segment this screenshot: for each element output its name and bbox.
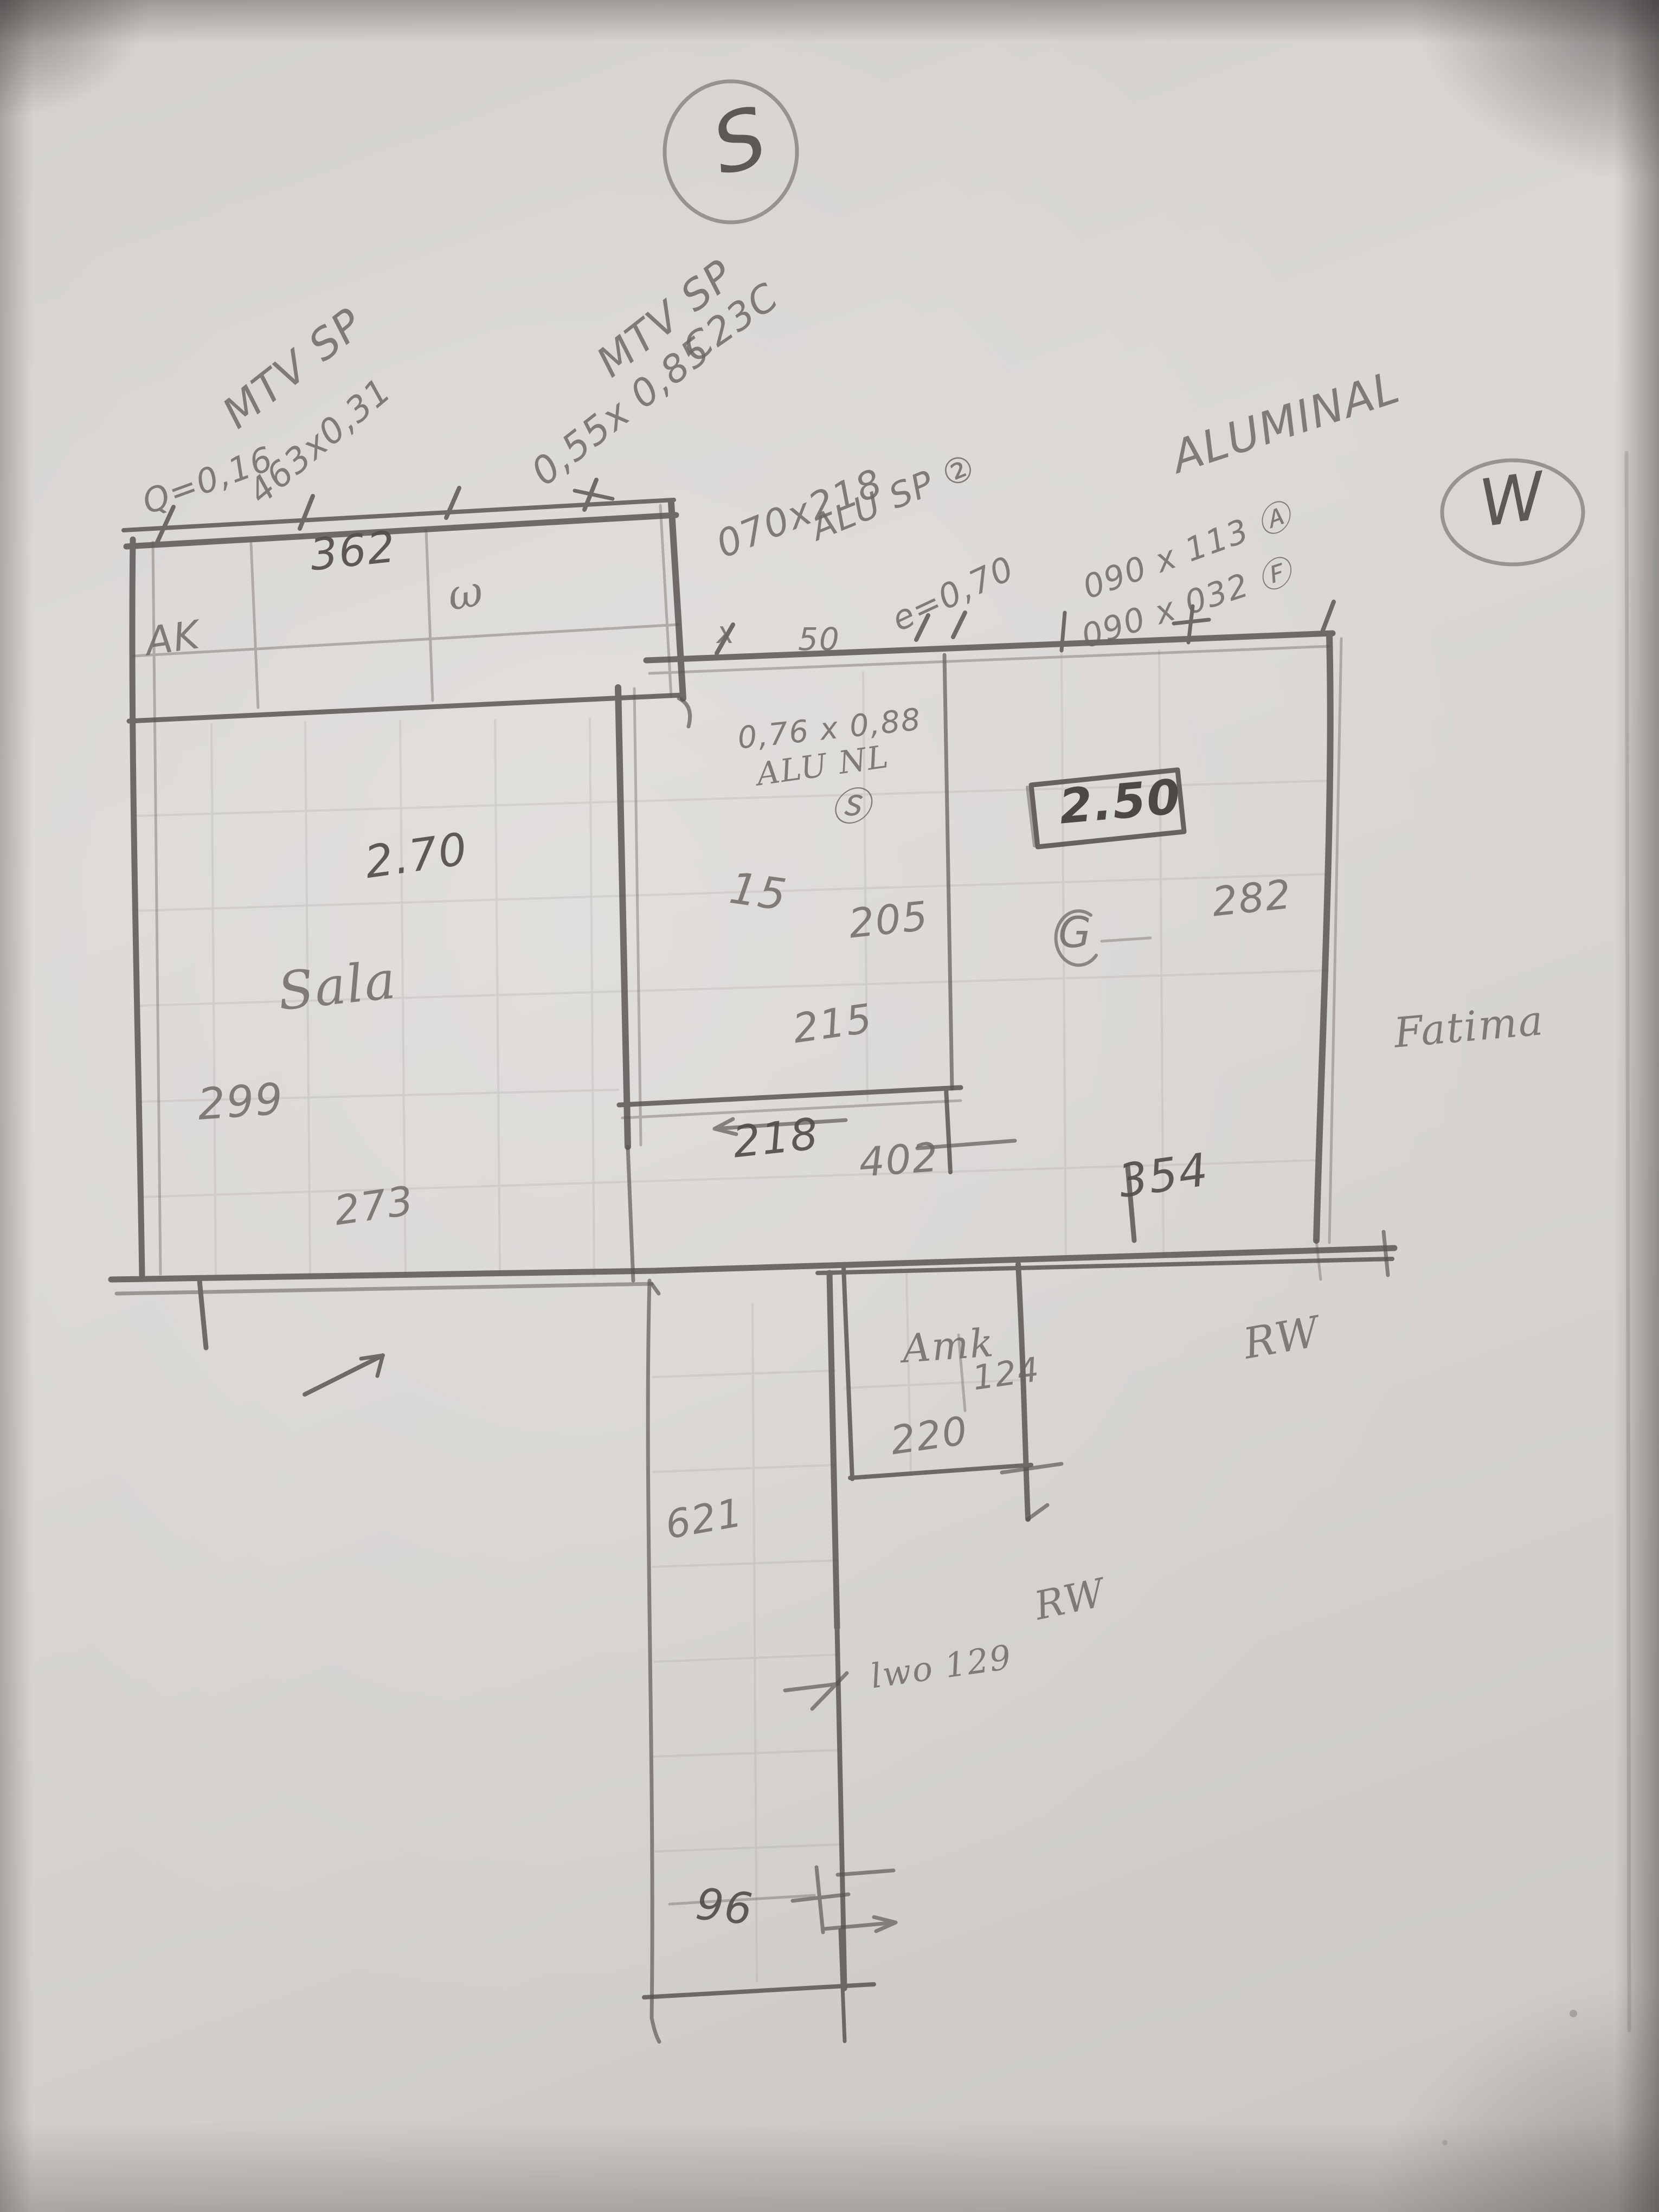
dimension-402: 402 (858, 1137, 940, 1183)
dimension-124: 124 (970, 1353, 1042, 1396)
dimension-96: 96 (694, 1882, 756, 1932)
heavy-walls (111, 480, 1394, 2041)
dimension-362: 362 (308, 525, 398, 577)
wall-mark-50: 50 (798, 623, 840, 655)
photo-corner-top-left (0, 0, 152, 119)
photo-corner-top-right (1410, 0, 1659, 184)
room-label-ak: AK (143, 615, 203, 661)
photo-corner-bottom-right (1377, 1984, 1659, 2212)
dimension-273: 273 (332, 1181, 416, 1232)
dimension-282: 282 (1210, 874, 1294, 923)
photo-edge-left (0, 0, 33, 2212)
dimension-215: 215 (790, 999, 875, 1050)
dimension-354: 354 (1116, 1147, 1211, 1204)
dimension-220: 220 (888, 1411, 970, 1460)
boxed-value-2-50: 2.50 (1057, 773, 1183, 831)
construction-grid (136, 651, 1328, 1982)
paper-edge-and-specks (1442, 453, 1629, 2145)
circled-g-letter: G (1058, 912, 1092, 954)
annotation-circled-s: Ⓢ (831, 787, 871, 826)
squiggle-w-mark: ω (445, 570, 487, 618)
wall-mark-x: x (717, 618, 736, 648)
dimension-299: 299 (196, 1077, 285, 1127)
photo-edge-right (1616, 0, 1659, 2212)
dimension-218: 218 (731, 1112, 821, 1164)
compass-west-letter: W (1476, 464, 1549, 537)
dimension-15: 15 (727, 866, 790, 917)
room-label-sala: Sala (275, 954, 399, 1018)
dimension-205: 205 (847, 896, 930, 944)
label-rw-upper: RW (1240, 1310, 1323, 1365)
photo-of-floor-plan-sketch: S W MTV SP 463x0,31 Q=0,16 MTV SP 0,55x … (0, 0, 1659, 2212)
name-fatima: Fatima (1392, 1000, 1546, 1054)
